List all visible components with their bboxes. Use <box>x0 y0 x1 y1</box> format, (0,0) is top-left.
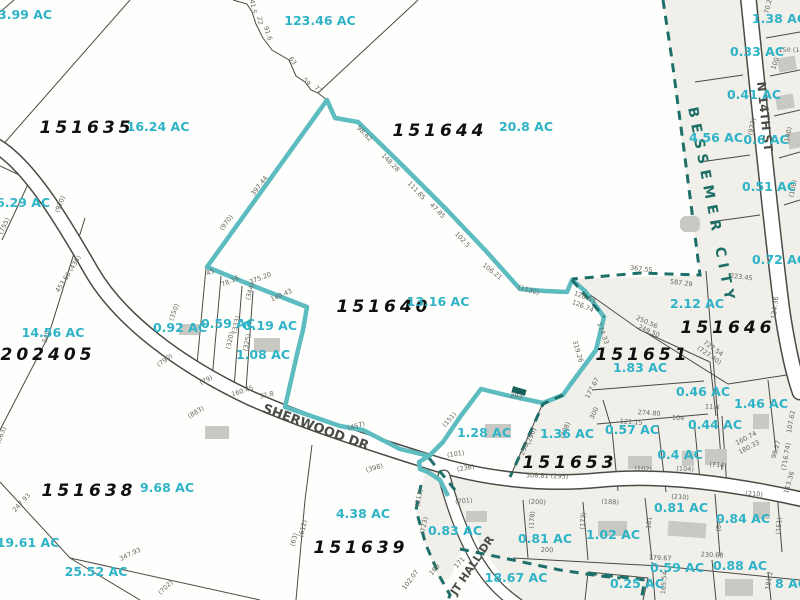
dimension-label: 453.66 (436) <box>54 254 83 294</box>
acreage-label: 9.68 AC <box>140 480 194 495</box>
dimension-label: (200) <box>528 498 546 507</box>
dimension-label: 104 <box>672 414 685 423</box>
parcel-id-label: 151635 <box>40 118 135 138</box>
acreage-label: 1.36 AC <box>540 426 594 441</box>
dimension-label: 22 <box>255 16 264 26</box>
dimension-label: 11.4 <box>705 403 720 412</box>
acreage-label: 0.81 AC <box>654 500 708 515</box>
acreage-label: 0.4 AC <box>657 447 702 462</box>
acreage-label: 1.02 AC <box>586 527 640 542</box>
acreage-label: 0.88 AC <box>713 558 767 573</box>
dimension-label: (178) <box>527 511 536 529</box>
acreage-label: 25.52 AC <box>65 564 128 579</box>
dimension-label: 63 <box>287 55 298 66</box>
acreage-label: 1.46 AC <box>734 396 788 411</box>
dimension-label: (1130) <box>517 283 540 297</box>
acreage-label: 14.56 AC <box>22 325 85 340</box>
dimension-label: (883) <box>186 404 205 420</box>
dimension-label: (663) <box>0 426 8 445</box>
acreage-label: 0.46 AC <box>676 384 730 399</box>
acreage-label: 6.29 AC <box>0 195 50 210</box>
acreage-label: 0.83 AC <box>428 523 482 538</box>
dimension-label: 41.5 <box>248 0 258 14</box>
acreage-label: 0.72 AC <box>752 252 800 267</box>
acreage-label: 0.81 AC <box>518 531 572 546</box>
acreage-label: 16.24 AC <box>127 119 190 134</box>
dimension-label: (101) <box>447 449 465 459</box>
parcel-id-label: 151639 <box>314 538 409 558</box>
acreage-label: 19.61 AC <box>0 535 59 550</box>
acreage-label: 1.08 AC <box>236 347 290 362</box>
acreage-label: 0.25 AC <box>610 576 664 591</box>
parcel-id-label: 151644 <box>393 121 488 141</box>
dimension-label: 203 <box>510 391 523 401</box>
acreage-label: 0.84 AC <box>716 511 770 526</box>
dimension-label: (398) <box>365 462 384 475</box>
acreage-label: 8 AC <box>775 576 800 591</box>
dimension-label: (320) <box>224 331 235 350</box>
acreage-label: 0.41 AC <box>727 87 781 102</box>
acreage-label: 0.57 AC <box>605 422 659 437</box>
acreage-label: 20.8 AC <box>499 119 553 134</box>
acreage-label: 2.12 AC <box>670 296 724 311</box>
acreage-label: 1.28 AC <box>457 425 511 440</box>
dimension-label: (102) <box>634 465 652 474</box>
dimension-label: 161 <box>644 516 653 529</box>
acreage-label: 0.44 AC <box>688 417 742 432</box>
parcel-id-label: 151638 <box>42 481 137 501</box>
acreage-label: 4.38 AC <box>336 506 390 521</box>
parcel-id-label: 202405 <box>1 345 96 365</box>
acreage-label: 1.83 AC <box>613 360 667 375</box>
acreage-label: 0.33 AC <box>730 44 784 59</box>
dimension-label: (702) <box>157 579 175 597</box>
acreage-label: 0.59 AC <box>650 560 704 575</box>
dimension-label: (151) <box>774 517 783 535</box>
acreage-label: 13.16 AC <box>407 294 470 309</box>
acreage-label: 0.6 AC <box>743 132 788 147</box>
dimension-label: 274.80 <box>638 408 661 418</box>
dimension-label: 375.20 <box>248 270 272 286</box>
dimension-label: 200 <box>541 546 554 554</box>
acreage-label: 18.67 AC <box>485 570 548 585</box>
acreage-label: 123.46 AC <box>284 13 355 28</box>
parcel-id-label: 151653 <box>523 453 618 473</box>
dimension-label: (714) <box>709 461 727 470</box>
acreage-label: 3.99 AC <box>0 7 52 22</box>
acreage-label: 0.92 AC <box>153 320 207 335</box>
dimension-label: (210) <box>745 490 763 499</box>
acreage-label: 4.56 AC <box>689 130 743 145</box>
dimension-label: 102.07 <box>400 568 420 591</box>
dimension-label: 98.62 <box>355 124 374 143</box>
dimension-label: 319.26 <box>571 339 585 363</box>
parcel-id-label: 151646 <box>681 318 776 338</box>
dimension-label: 347.93 <box>118 546 142 563</box>
parcel-map-canvas[interactable]: 41.52291.6635977397.44(970)98.62148.2811… <box>0 0 800 600</box>
dimension-label: (612) <box>297 519 309 538</box>
gis-parcel-map: 41.52291.6635977397.44(970)98.62148.2811… <box>0 0 800 600</box>
dimension-label: 77 <box>313 84 324 95</box>
acreage-label: 0.19 AC <box>243 318 297 333</box>
dimension-label: 59 <box>301 76 312 87</box>
acreage-label: 0.51 AC <box>742 179 796 194</box>
dimension-label: 111.85 <box>406 180 428 202</box>
dimension-label: 247.93 <box>11 492 32 514</box>
acreage-label: 1.38 AC <box>752 11 800 26</box>
dimension-label: (104) <box>676 465 694 474</box>
dimension-label: (188) <box>601 498 619 507</box>
